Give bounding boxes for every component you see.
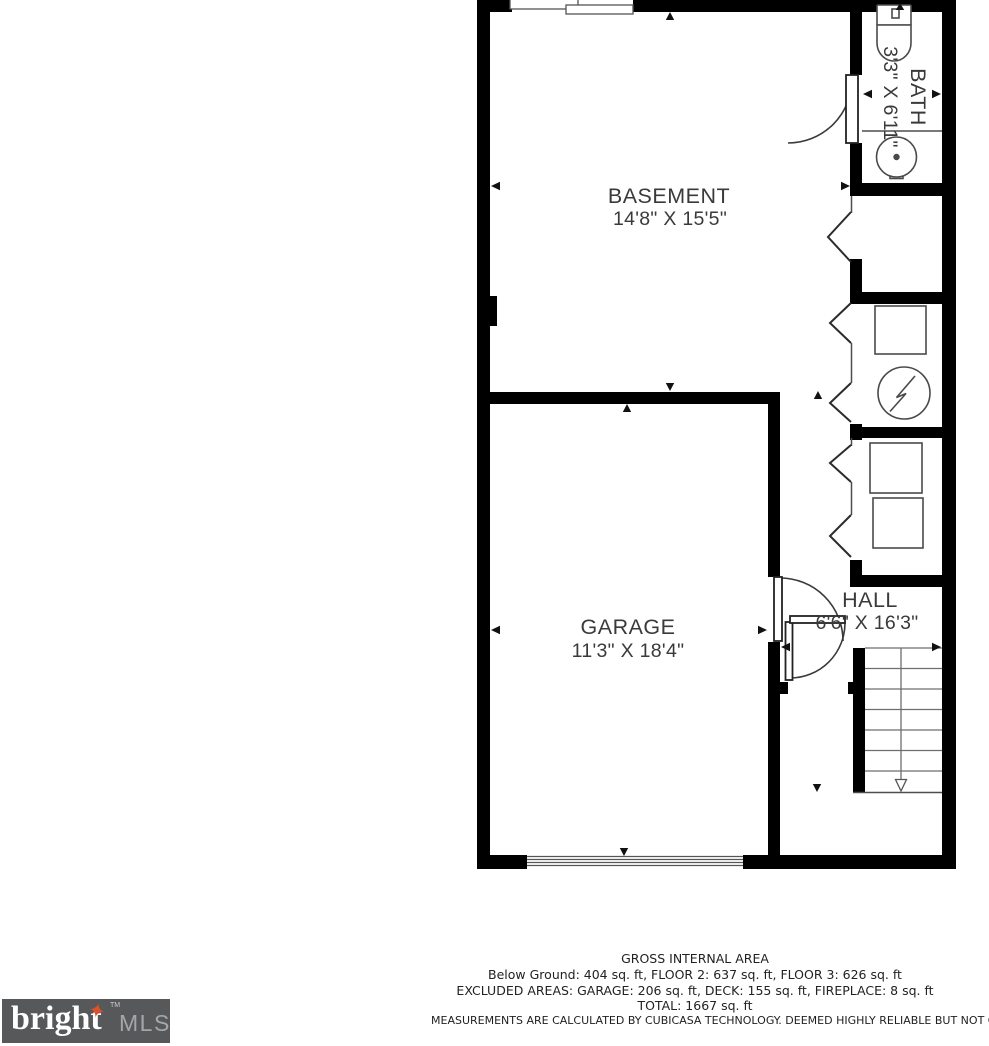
total-area-line: TOTAL: 1667 sq. ft bbox=[637, 999, 752, 1013]
water-heater-icon bbox=[878, 367, 930, 419]
bifold-door bbox=[830, 515, 851, 557]
basement-dimensions: 14'8" X 15'5" bbox=[613, 208, 727, 230]
wall-segment bbox=[850, 575, 956, 587]
wall-segment bbox=[768, 642, 780, 855]
logo-mls-text: MLS bbox=[119, 1010, 171, 1037]
wall-segment bbox=[850, 183, 956, 196]
measure-arrow-up bbox=[623, 404, 631, 412]
wall-segment bbox=[853, 648, 865, 793]
measure-arrow-up bbox=[814, 391, 822, 399]
measure-arrow-right bbox=[758, 626, 767, 634]
measure-arrow-left bbox=[491, 626, 500, 634]
star-icon: ✦ bbox=[86, 997, 108, 1024]
bath-label: BATH bbox=[906, 68, 930, 126]
brightmls-logo: bright ✦ TM MLS bbox=[2, 999, 170, 1043]
bifold-door bbox=[830, 445, 851, 482]
measurement-disclaimer: MEASUREMENTS ARE CALCULATED BY CUBICASA … bbox=[431, 1015, 989, 1027]
wall-segment bbox=[477, 855, 527, 869]
wall-segment bbox=[477, 392, 780, 404]
measure-arrow-up bbox=[666, 12, 674, 20]
excluded-areas-line: EXCLUDED AREAS: GARAGE: 206 sq. ft, DECK… bbox=[456, 984, 933, 998]
trademark-symbol: TM bbox=[110, 1002, 120, 1009]
door-leaf bbox=[786, 622, 793, 680]
hall-dimensions: 6'6" X 16'3" bbox=[816, 612, 919, 634]
wall-pilaster bbox=[490, 296, 497, 326]
garage-door bbox=[527, 855, 743, 869]
wall-segment bbox=[743, 855, 956, 869]
bath-dimensions: 3'3" X 6'11" bbox=[879, 46, 901, 148]
garage-label: GARAGE bbox=[581, 615, 676, 639]
bath-door bbox=[788, 75, 858, 143]
measure-arrow-down bbox=[813, 784, 821, 792]
measure-arrow-right bbox=[932, 90, 941, 98]
washer-icon bbox=[870, 443, 922, 493]
measure-arrow-down bbox=[666, 383, 674, 391]
wall-segment bbox=[850, 292, 956, 304]
bifold-door bbox=[830, 303, 851, 343]
bifold-door bbox=[828, 212, 851, 262]
floorplan-page: BASEMENT 14'8" X 15'5" GARAGE 11'3" X 18… bbox=[0, 0, 989, 1046]
measure-arrow-down bbox=[620, 848, 628, 856]
wall-segment bbox=[850, 427, 956, 438]
staircase bbox=[865, 648, 942, 791]
wall-segment bbox=[850, 0, 862, 75]
door-leaf bbox=[774, 577, 782, 641]
gross-internal-area-title: GROSS INTERNAL AREA bbox=[621, 952, 769, 966]
wall-segment bbox=[768, 682, 788, 694]
measure-arrow-left bbox=[491, 182, 500, 190]
bifold-doors bbox=[828, 212, 851, 557]
bifold-door bbox=[830, 383, 851, 422]
wall-segment bbox=[768, 392, 780, 577]
garage-dimensions: 11'3" X 18'4" bbox=[572, 640, 685, 662]
appliance-icon bbox=[875, 306, 926, 354]
floor-areas-line: Below Ground: 404 sq. ft, FLOOR 2: 637 s… bbox=[488, 968, 902, 982]
wall-segment bbox=[477, 0, 490, 869]
sliding-window bbox=[510, 0, 633, 14]
door-leaf bbox=[846, 75, 858, 143]
measure-arrow-right bbox=[841, 182, 850, 190]
hall-label: HALL bbox=[842, 588, 898, 612]
dryer-icon bbox=[873, 498, 923, 548]
stairs-down-arrow bbox=[896, 780, 907, 792]
measure-arrow-left bbox=[863, 90, 872, 98]
measure-arrow-right bbox=[932, 643, 941, 651]
basement-label: BASEMENT bbox=[608, 184, 730, 208]
floorplan-drawing: BASEMENT 14'8" X 15'5" GARAGE 11'3" X 18… bbox=[0, 0, 989, 1046]
window-pane bbox=[566, 5, 633, 14]
